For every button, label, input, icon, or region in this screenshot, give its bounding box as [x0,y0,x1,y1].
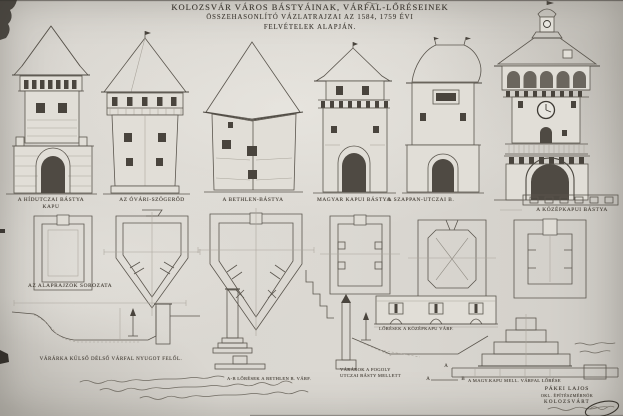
plan-kozepkapu [514,219,586,298]
plan-ovari [104,210,200,316]
fogoly-moat-label-line2: UTCZAI BÁSTY MELLETT [340,373,426,378]
sheet-title-line1: KOLOZSVÁR VÁROS BÁSTYÁINAK, VÁRFAL-LŐRÉS… [100,3,520,13]
moat-section-west [12,300,200,344]
pier-section [336,294,356,369]
drawing-sheet: KOLOZSVÁR VÁROS BÁSTYÁINAK, VÁRFAL-LŐRÉS… [0,0,623,416]
tower-bethlen-elevation [203,42,303,192]
loophole-wall-elevation [374,296,498,327]
handwritten-margin-note [575,343,615,353]
sheet-title-line2: ÖSSZEHASONLÍTÓ VÁZLATRAJZAI AZ 1584, 175… [100,14,520,22]
tower-magyar-kapu-elevation [313,42,396,193]
plans-series-label: AZ ALAPRAJZOK SOROZATA [28,283,143,289]
tower-ovari-elevation [101,31,190,194]
tower-hid-utcai-elevation [6,26,97,194]
marker-a: A [424,377,432,383]
tower-label-hid-utcai-line2: KAPU [3,204,99,210]
plan-bethlen [198,208,314,336]
moat-west-label: VÁRÁRKA KÜLSŐ DÉLSŐ VÁRFAL NYUGOT FELŐL. [16,357,206,363]
plan-hid-utcai [34,215,92,290]
tower-label-szappan: A SZAPPAN-UTCZAI B. [373,197,469,203]
tower-szappan-elevation [402,37,484,193]
arrow-marker-left [128,308,138,336]
loopholes-label: LŐRÉSEK A KÖZÉPKAPU VÁRF. [379,326,489,331]
plan-magyar-kapu [320,215,400,294]
signature-city: KOLOZSVÁRT [534,400,600,406]
sheet-title-line3: FELVÉTELEK ALAPJÁN. [100,24,520,32]
signature-title: OKL. ÉPÍTÉSZMÉRNÖK [528,394,606,399]
wall-section-ab [213,289,265,369]
bar-marker-a: A [442,364,450,370]
tower-label-kozepkapu: A KÖZÉPKAPUI BÁSTYA [524,207,620,213]
tower-label-hid-utcai: A HÍDUTCZAI BÁSTYA [3,197,99,203]
fogoly-moat-profile [352,336,488,357]
marker-b: B [459,377,467,383]
arrow-marker-right [361,312,371,340]
plan-szappan [408,220,496,298]
signature-name: PÁKEI LAJOS [534,386,600,392]
tower-label-bethlen: A BETHLEN-BÁSTYA [205,197,301,203]
magyar-gate-label: A MAGY.KAPU MELL. VÁRFAL LŐRÉSE [468,378,608,383]
bethlen-section-label: A-B LŐRÉSEK A BETHLEN B. VÁRF. [227,376,337,381]
fogoly-moat-label-line1: VÁRÁROK A FOGOLY [340,367,426,372]
tower-label-ovari: AZ ÓVÁRI-SZÖGERŐD [104,197,200,203]
